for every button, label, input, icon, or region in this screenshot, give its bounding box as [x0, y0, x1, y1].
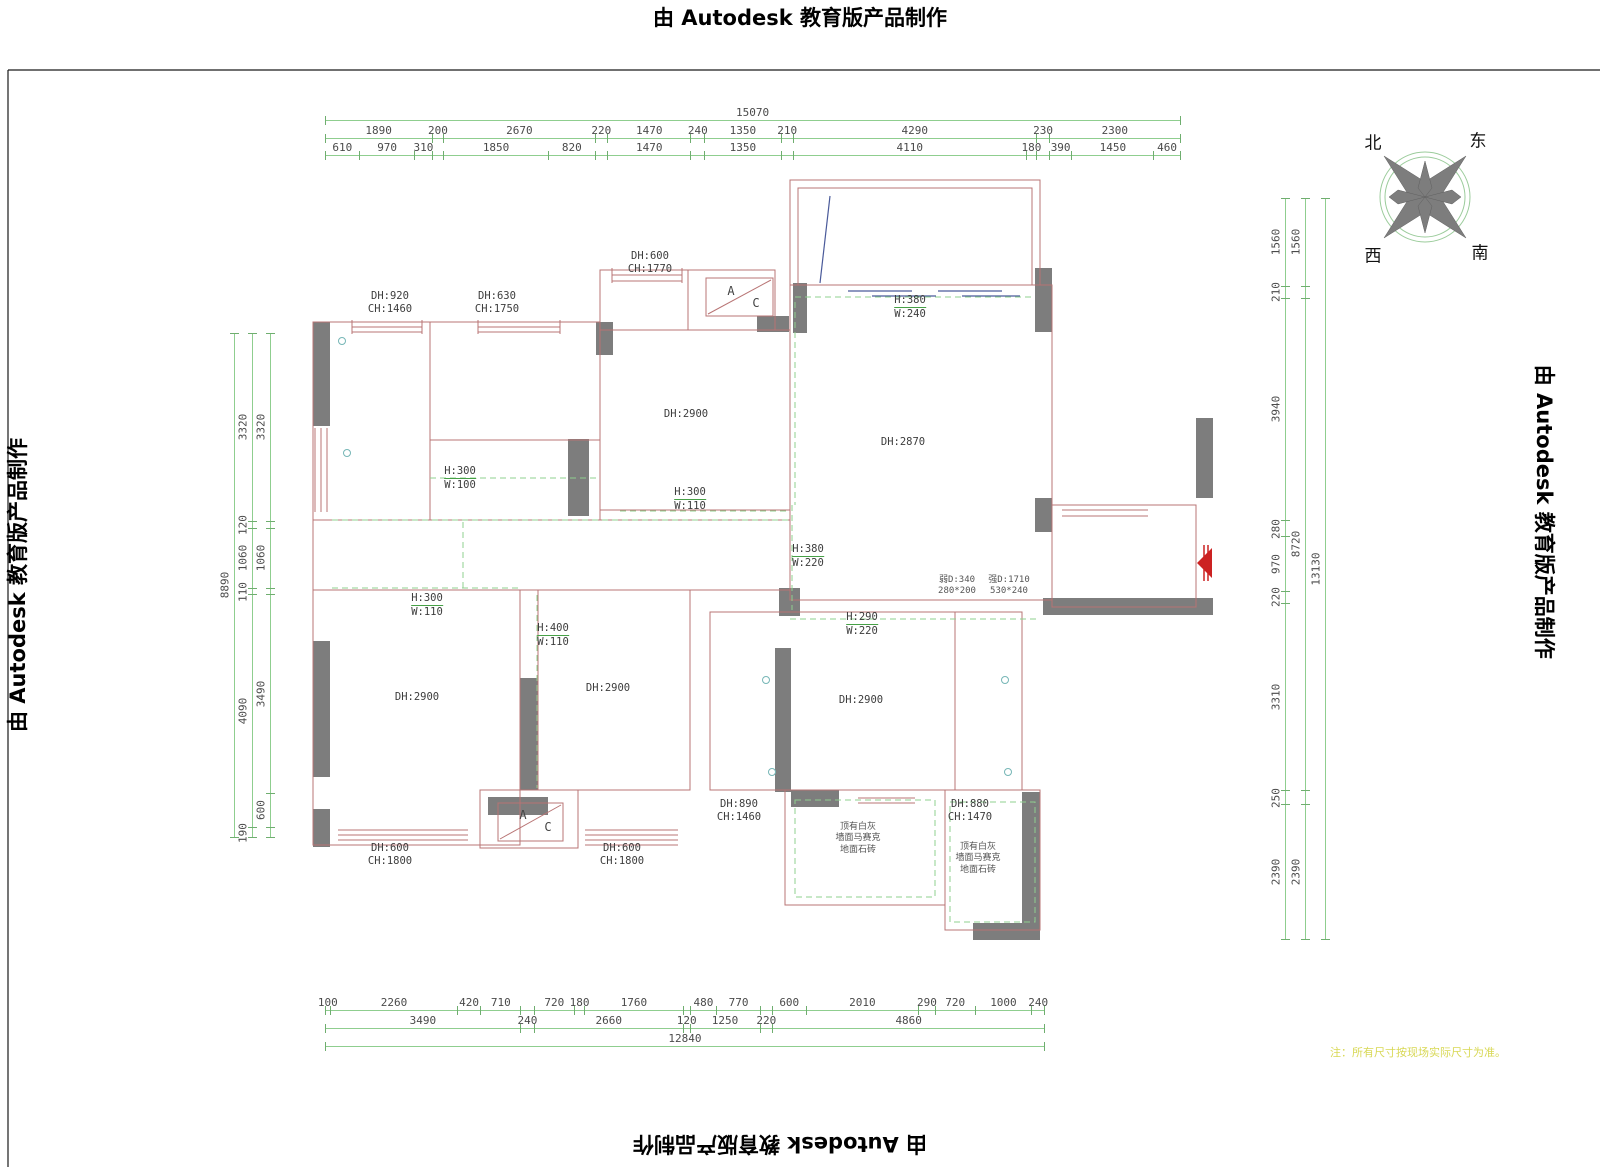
dim-label: 3490 — [410, 1014, 437, 1027]
dim-tick — [325, 134, 326, 143]
dim-label: 720 — [945, 996, 965, 1009]
dim-label: 1470 — [636, 141, 663, 154]
annotation: DH:600CH:1800 — [600, 842, 644, 868]
dim-tick — [1281, 298, 1290, 299]
dim-tick — [1153, 151, 1154, 160]
annotation: 顶有白灰墙面马赛克地面石砖 — [955, 842, 1000, 876]
dim-tick — [480, 1006, 481, 1015]
sliding-windows — [820, 196, 1020, 296]
site-dimension-note: 注：所有尺寸按现场实际尺寸为准。 — [1330, 1044, 1506, 1060]
watermark-right: 由 Autodesk 教育版产品制作 — [1530, 365, 1560, 659]
dim-label: 1560 — [1270, 229, 1283, 256]
dim-label: 1250 — [712, 1014, 739, 1027]
dim-tick — [443, 151, 444, 160]
dim-label: 3940 — [1270, 396, 1283, 423]
dim-tick — [1044, 1042, 1045, 1051]
dim-label: 4090 — [237, 698, 250, 725]
dim-label: 12840 — [668, 1032, 701, 1045]
annotation: DH:600CH:1800 — [368, 842, 412, 868]
dim-label: 100 — [318, 996, 338, 1009]
dim-line — [1325, 198, 1326, 940]
dim-tick — [1281, 603, 1290, 604]
dim-tick — [704, 151, 705, 160]
dim-line — [234, 333, 235, 838]
dim-label: 1850 — [483, 141, 510, 154]
dim-tick — [1180, 151, 1181, 160]
annotation: C — [544, 820, 551, 835]
dim-tick — [975, 1006, 976, 1015]
dim-label: 1350 — [730, 124, 757, 137]
dim-tick — [607, 151, 608, 160]
dim-tick — [595, 151, 596, 160]
annotation: DH:2900 — [839, 694, 883, 707]
dim-line — [325, 155, 1180, 156]
dim-label: 2260 — [381, 996, 408, 1009]
dim-tick — [1180, 134, 1181, 143]
dim-tick — [266, 588, 275, 589]
annotation: DH:630CH:1750 — [475, 290, 519, 316]
dim-tick — [1281, 804, 1290, 805]
annotation: H:300W:110 — [674, 486, 706, 513]
dim-line — [325, 1028, 1045, 1029]
dim-tick — [1301, 298, 1310, 299]
annotation: DH:2900 — [586, 682, 630, 695]
dim-label: 720 — [544, 996, 564, 1009]
dim-label: 3490 — [255, 681, 268, 708]
dim-line — [325, 1010, 1045, 1011]
dim-tick — [325, 1042, 326, 1051]
annotation: DH:2900 — [664, 408, 708, 421]
dim-tick — [359, 151, 360, 160]
dim-label: 3310 — [1270, 684, 1283, 711]
dim-tick — [607, 134, 608, 143]
annotation: DH:880CH:1470 — [948, 798, 992, 824]
dim-tick — [793, 151, 794, 160]
watermark-left: 由 Autodesk 教育版产品制作 — [2, 438, 32, 732]
dim-label: 180 — [1021, 141, 1041, 154]
annotation: DH:2900 — [395, 691, 439, 704]
dim-label: 220 — [591, 124, 611, 137]
dim-tick — [1301, 804, 1310, 805]
dim-tick — [248, 528, 257, 529]
dim-label: 2390 — [1290, 859, 1303, 886]
dim-label: 1470 — [636, 124, 663, 137]
dim-tick — [704, 134, 705, 143]
compass-south-label: 南 — [1472, 239, 1489, 264]
dim-tick — [266, 793, 275, 794]
dim-label: 460 — [1157, 141, 1177, 154]
dim-label: 180 — [570, 996, 590, 1009]
dim-label: 1060 — [255, 545, 268, 572]
dim-tick — [432, 151, 433, 160]
dim-tick — [1281, 939, 1290, 940]
dim-tick — [781, 151, 782, 160]
annotation: H:300W:110 — [411, 592, 443, 619]
cad-floorplan-canvas: 北 东 西 南 由 Autodesk 教育版产品制作 由 Autodesk 教育… — [0, 0, 1600, 1167]
dim-label: 1560 — [1290, 229, 1303, 256]
annotation: H:380W:240 — [894, 294, 926, 321]
dim-tick — [935, 1006, 936, 1015]
dim-tick — [266, 528, 275, 529]
compass-rose — [1380, 152, 1470, 242]
annotation: H:380W:220 — [792, 543, 824, 570]
compass-north-label: 北 — [1365, 129, 1382, 154]
dim-tick — [772, 1024, 773, 1033]
dim-label: 4290 — [902, 124, 929, 137]
dim-label: 2660 — [595, 1014, 622, 1027]
dim-label: 1350 — [730, 141, 757, 154]
dim-tick — [584, 1006, 585, 1015]
fixture-symbols — [339, 338, 1012, 776]
dim-tick — [325, 151, 326, 160]
compass-west-label: 西 — [1365, 242, 1382, 267]
dim-label: 1890 — [365, 124, 392, 137]
dim-label: 220 — [1270, 588, 1283, 608]
dim-label: 110 — [237, 582, 250, 602]
annotation: 弱D:340280*200 — [938, 575, 976, 598]
dim-label: 15070 — [736, 106, 769, 119]
dim-label: 480 — [694, 996, 714, 1009]
dim-label: 13130 — [1310, 552, 1323, 585]
annotation: H:400W:110 — [537, 622, 569, 649]
dim-label: 4860 — [895, 1014, 922, 1027]
dim-label: 420 — [459, 996, 479, 1009]
watermark-top: 由 Autodesk 教育版产品制作 — [653, 2, 947, 32]
dim-label: 600 — [255, 800, 268, 820]
annotation: DH:2870 — [881, 436, 925, 449]
dim-tick — [248, 594, 257, 595]
shear-walls — [313, 268, 1213, 940]
dim-label: 390 — [1051, 141, 1071, 154]
annotation: A — [519, 808, 526, 823]
dim-line — [1285, 198, 1286, 940]
dim-label: 1000 — [990, 996, 1017, 1009]
annotation: A — [727, 284, 734, 299]
dim-label: 1450 — [1100, 141, 1127, 154]
annotation: DH:920CH:1460 — [368, 290, 412, 316]
annotation: H:300W:100 — [444, 465, 476, 492]
dim-label: 2010 — [849, 996, 876, 1009]
annotation: DH:890CH:1460 — [717, 798, 761, 824]
annotation: 顶有白灰墙面马赛克地面石砖 — [835, 822, 880, 856]
dim-tick — [1301, 939, 1310, 940]
dim-label: 190 — [237, 823, 250, 843]
dim-tick — [248, 837, 257, 838]
dim-line — [270, 333, 271, 838]
dim-label: 120 — [677, 1014, 697, 1027]
dim-tick — [1281, 198, 1290, 199]
dim-label: 770 — [729, 996, 749, 1009]
entry-door-symbol — [1197, 545, 1212, 581]
dim-label: 210 — [777, 124, 797, 137]
dim-tick — [266, 521, 275, 522]
dim-label: 1760 — [621, 996, 648, 1009]
dim-label: 220 — [756, 1014, 776, 1027]
dim-tick — [793, 134, 794, 143]
dim-tick — [1301, 790, 1310, 791]
dim-label: 600 — [779, 996, 799, 1009]
dim-tick — [266, 827, 275, 828]
dim-tick — [330, 1006, 331, 1015]
dim-line — [325, 120, 1180, 121]
dim-tick — [1321, 198, 1330, 199]
dim-label: 8720 — [1290, 531, 1303, 558]
dim-tick — [230, 333, 239, 334]
dim-tick — [325, 1024, 326, 1033]
dim-label: 970 — [377, 141, 397, 154]
dim-tick — [548, 151, 549, 160]
dim-tick — [690, 151, 691, 160]
dim-tick — [1321, 939, 1330, 940]
dim-tick — [266, 837, 275, 838]
dim-label: 8890 — [219, 572, 232, 599]
dim-label: 2390 — [1270, 859, 1283, 886]
dim-tick — [443, 134, 444, 143]
dim-tick — [1071, 151, 1072, 160]
dim-label: 120 — [237, 515, 250, 535]
dim-tick — [1301, 286, 1310, 287]
dim-label: 820 — [562, 141, 582, 154]
annotation: DH:600CH:1770 — [628, 250, 672, 276]
dim-line — [325, 1046, 1045, 1047]
dim-tick — [806, 1006, 807, 1015]
annotation: H:290W:220 — [846, 611, 878, 638]
dim-line — [252, 333, 253, 838]
dim-line — [1305, 198, 1306, 940]
dim-label: 3320 — [237, 414, 250, 441]
dim-label: 200 — [428, 124, 448, 137]
dim-label: 3320 — [255, 414, 268, 441]
dim-label: 1060 — [237, 545, 250, 572]
dim-label: 970 — [1270, 554, 1283, 574]
annotation: C — [752, 296, 759, 311]
dim-tick — [266, 333, 275, 334]
dim-tick — [325, 116, 326, 125]
dim-label: 4110 — [896, 141, 923, 154]
dim-tick — [1301, 198, 1310, 199]
dim-label: 710 — [491, 996, 511, 1009]
dim-tick — [1180, 116, 1181, 125]
dim-label: 310 — [414, 141, 434, 154]
dim-tick — [534, 1024, 535, 1033]
dim-tick — [457, 1006, 458, 1015]
dim-label: 610 — [332, 141, 352, 154]
dim-tick — [1044, 1006, 1045, 1015]
watermark-bottom: 由 Autodesk 教育版产品制作 — [633, 1130, 927, 1160]
dim-tick — [1044, 1024, 1045, 1033]
dim-label: 2300 — [1102, 124, 1129, 137]
dim-tick — [266, 594, 275, 595]
dim-label: 210 — [1270, 282, 1283, 302]
dim-label: 2670 — [506, 124, 533, 137]
compass-east-label: 东 — [1470, 127, 1487, 152]
dim-tick — [248, 333, 257, 334]
dim-line — [325, 138, 1180, 139]
annotation: 强D:1710530*240 — [988, 575, 1030, 598]
dim-tick — [1036, 151, 1037, 160]
